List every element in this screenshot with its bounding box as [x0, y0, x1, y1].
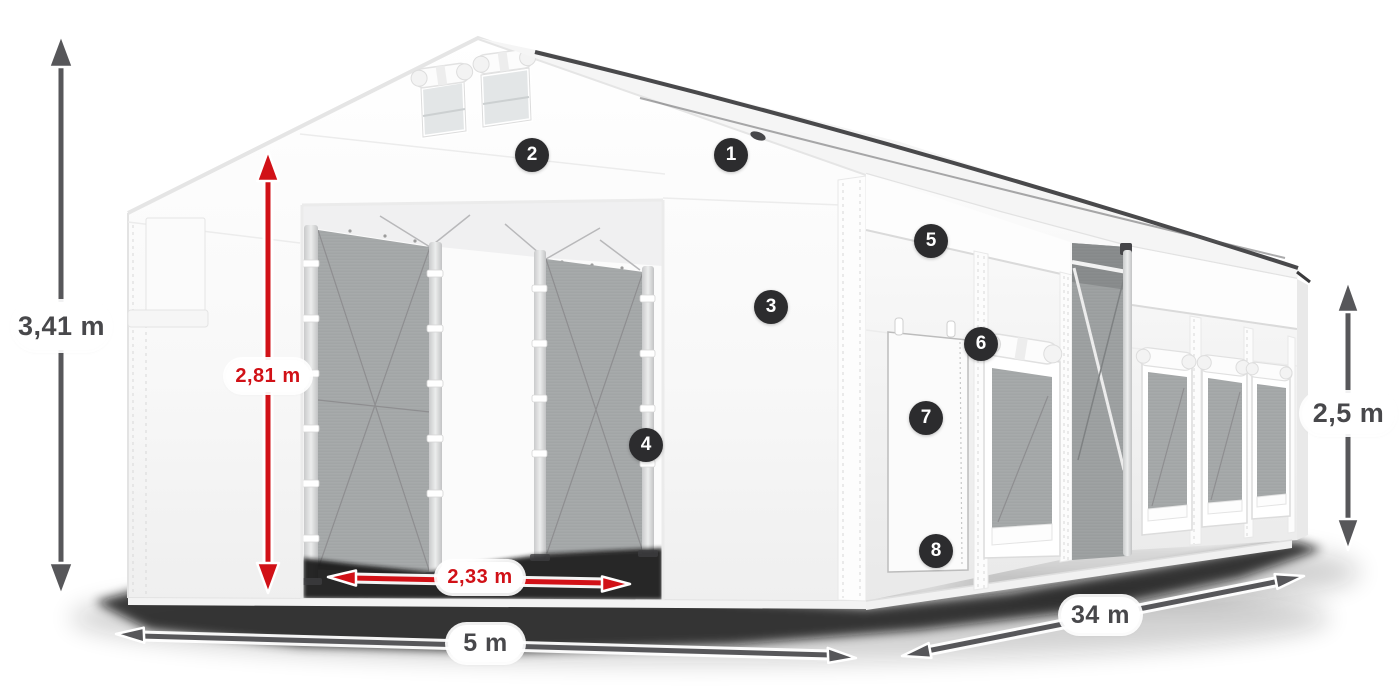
callout-2[interactable]: 2	[515, 138, 549, 172]
dimension-label-front-width: 5 m	[448, 625, 523, 662]
callout-8[interactable]: 8	[919, 534, 953, 568]
callout-3[interactable]: 3	[754, 290, 788, 324]
dimension-label-entrance-height: 2,81 m	[226, 360, 310, 392]
tent-illustration	[0, 0, 1400, 700]
dimension-label-side-length: 34 m	[1061, 597, 1140, 633]
side-window-rear-2	[1196, 354, 1251, 527]
inner-mesh-panel-left	[318, 230, 430, 573]
door-hanger-tab	[947, 321, 955, 337]
side-window-rear-3	[1245, 361, 1292, 519]
open-side-section	[1072, 243, 1132, 560]
side-door	[888, 318, 968, 572]
callout-6[interactable]: 6	[964, 327, 998, 361]
dimension-label-entrance-width: 2,33 m	[437, 562, 523, 593]
tent-dimension-diagram: 3,41 m 2,81 m 2,33 m 5 m 34 m 2,5 m 1 2 …	[0, 0, 1400, 700]
left-wall-flap	[146, 218, 205, 325]
callout-1[interactable]: 1	[714, 138, 748, 172]
inner-mesh-panel-right	[546, 259, 643, 556]
callout-5[interactable]: 5	[914, 224, 948, 258]
side-window-rear-1	[1135, 346, 1197, 535]
callout-7[interactable]: 7	[909, 401, 943, 435]
side-window-front	[981, 332, 1063, 558]
vent-window-right	[472, 48, 537, 127]
dimension-label-total-height: 3,41 m	[13, 302, 110, 350]
dimension-label-side-height: 2,5 m	[1302, 393, 1395, 434]
callout-4[interactable]: 4	[629, 428, 663, 462]
front-corner-strap	[838, 176, 866, 601]
tent-interior	[299, 200, 663, 600]
side-frame-pole	[1123, 250, 1132, 556]
door-hanger-tab	[895, 318, 903, 335]
